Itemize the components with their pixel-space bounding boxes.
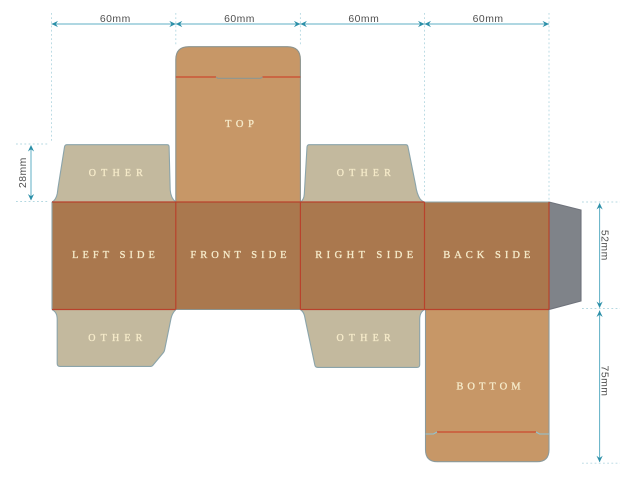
svg-text:OTHER: OTHER bbox=[88, 333, 147, 344]
svg-text:TOP: TOP bbox=[225, 119, 258, 130]
svg-text:RIGHT SIDE: RIGHT SIDE bbox=[315, 250, 417, 261]
svg-text:OTHER: OTHER bbox=[337, 168, 396, 179]
svg-text:60mm: 60mm bbox=[473, 14, 504, 25]
svg-text:60mm: 60mm bbox=[224, 14, 255, 25]
svg-text:75mm: 75mm bbox=[598, 366, 609, 397]
svg-text:BOTTOM: BOTTOM bbox=[456, 381, 524, 392]
svg-text:LEFT SIDE: LEFT SIDE bbox=[72, 250, 159, 261]
svg-text:52mm: 52mm bbox=[598, 230, 609, 261]
svg-text:60mm: 60mm bbox=[348, 14, 379, 25]
svg-text:BACK SIDE: BACK SIDE bbox=[443, 250, 534, 261]
svg-text:28mm: 28mm bbox=[18, 157, 29, 188]
svg-text:60mm: 60mm bbox=[100, 14, 131, 25]
svg-text:FRONT SIDE: FRONT SIDE bbox=[190, 250, 290, 261]
svg-text:OTHER: OTHER bbox=[337, 333, 396, 344]
svg-text:OTHER: OTHER bbox=[89, 168, 148, 179]
